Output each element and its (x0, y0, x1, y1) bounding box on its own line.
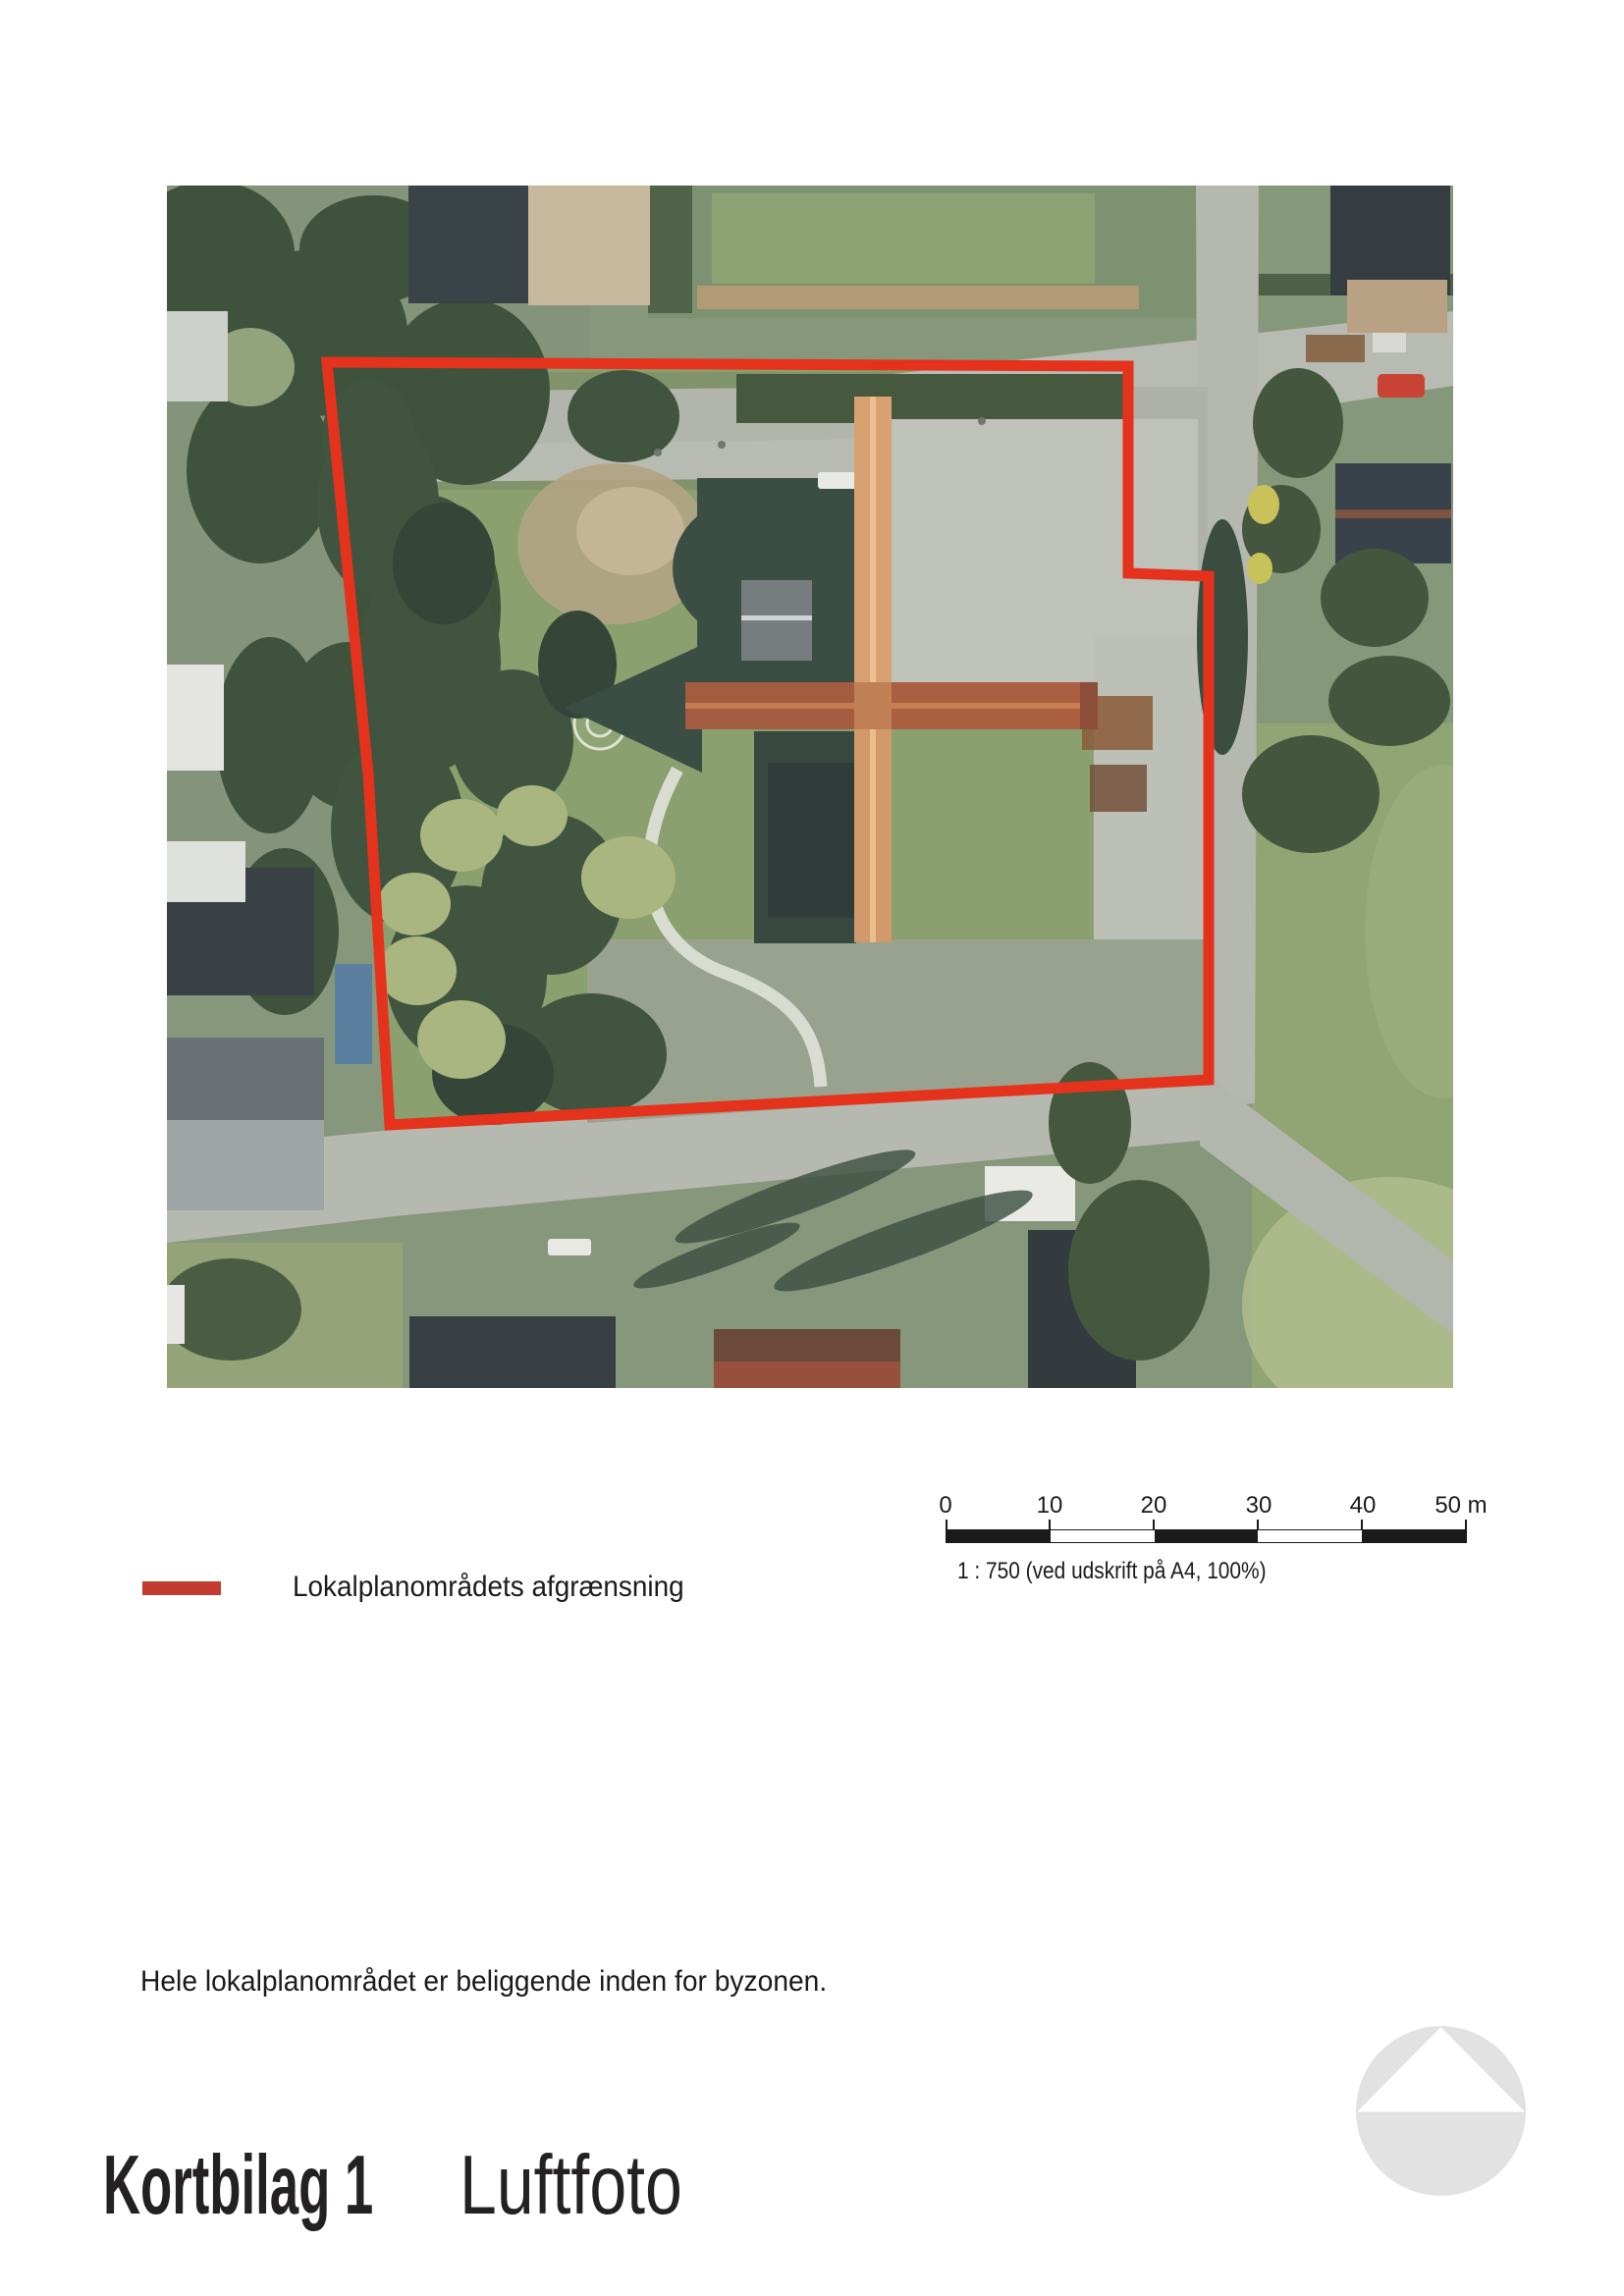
scale-caption: 1 : 750 (ved udskrift på A4, 100%) (957, 1558, 1267, 1585)
house-east (1335, 463, 1451, 563)
scalebar-tick-label: 0 (939, 1492, 951, 1520)
white-car (548, 1239, 591, 1255)
scalebar-tick-label: 30 (1246, 1492, 1272, 1520)
legend-label: Lokalplanområdets afgrænsning (293, 1571, 684, 1604)
scale-bar-segments (946, 1529, 1467, 1543)
aerial-photo-figure (167, 186, 1453, 1388)
municipality-logo (1356, 2026, 1526, 2196)
scale-bar-ticks (946, 1520, 1467, 1529)
red-car (1378, 374, 1425, 398)
scale-bar-labels: 0 10 20 30 40 50 m (946, 1492, 1467, 1518)
garden-hut (741, 580, 812, 661)
legend-line-swatch (142, 1581, 221, 1595)
zone-note: Hele lokalplanområdet er beliggende inde… (140, 1965, 827, 1999)
page-title-name: Luftfoto (460, 2138, 682, 2234)
blue-tarp (335, 964, 372, 1064)
scalebar-tick-label: 20 (1141, 1492, 1167, 1520)
legend-swatch (142, 1581, 221, 1600)
scale-bar: 0 10 20 30 40 50 m (946, 1492, 1467, 1543)
scalebar-tick-label: 50 m (1435, 1492, 1487, 1520)
aerial-photo (167, 186, 1453, 1388)
scalebar-tick-label: 10 (1037, 1492, 1063, 1520)
scalebar-tick-label: 40 (1350, 1492, 1377, 1520)
document-page: 0 10 20 30 40 50 m 1 : 750 (ved udskrift… (0, 0, 1624, 2296)
page-title-number: Kortbilag 1 (103, 2138, 373, 2234)
